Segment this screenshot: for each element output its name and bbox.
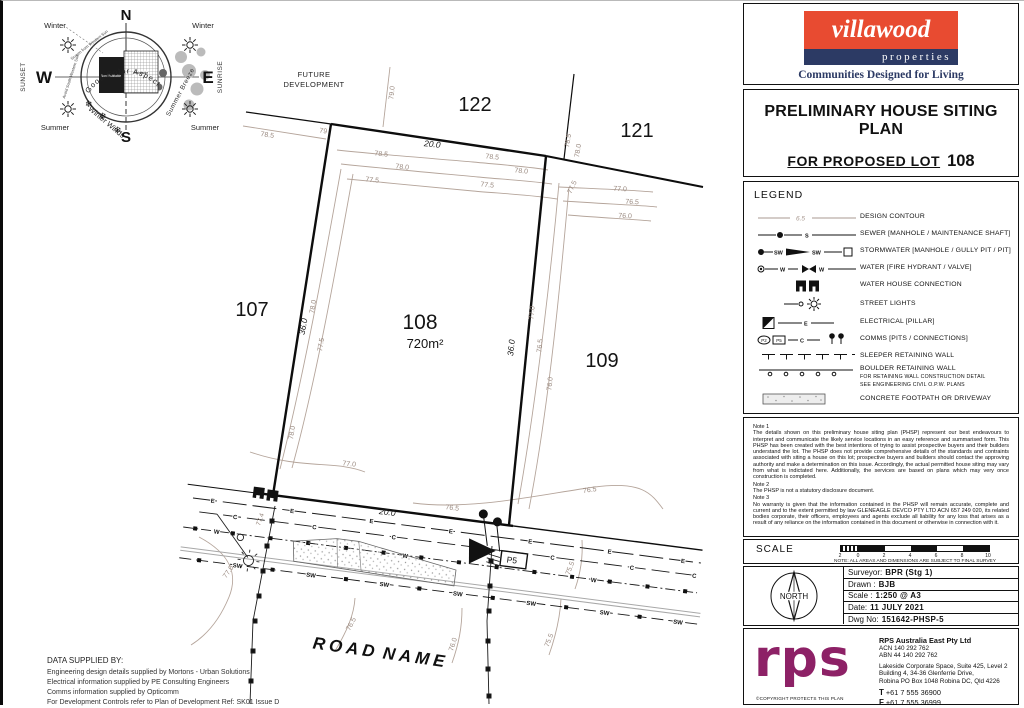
svg-text:DEVELOPMENT: DEVELOPMENT xyxy=(283,80,344,89)
svg-text:76.0: 76.0 xyxy=(618,213,632,221)
svg-text:E: E xyxy=(210,499,215,505)
svg-text:77.5: 77.5 xyxy=(567,180,579,195)
svg-text:77.0: 77.0 xyxy=(613,186,627,194)
compass-east: E xyxy=(202,68,213,87)
water-icon: W W xyxy=(756,261,860,277)
winter-sun-east-icon xyxy=(182,37,198,53)
svg-text:C: C xyxy=(692,574,698,581)
svg-text:Winter: Winter xyxy=(192,21,214,30)
data-supplied-heading: DATA SUPPLIED BY: xyxy=(47,656,407,665)
villawood-wordmark: villawood xyxy=(832,16,931,44)
svg-text:75.5: 75.5 xyxy=(565,561,577,576)
legend-row: W W WATER [FIRE HYDRANT / VALVE] xyxy=(756,260,1014,277)
firm-fax: F +61 7 555 36999 xyxy=(879,699,1007,707)
plan-sheet: E E E E E E E C C C C C C C xyxy=(0,0,1024,705)
legend-row: SLEEPER RETAINING WALL xyxy=(756,348,1014,365)
svg-text:77.5: 77.5 xyxy=(480,181,494,189)
north-arrow-icon: NORTH xyxy=(750,568,838,624)
svg-text:76.5: 76.5 xyxy=(583,486,598,495)
compass-west: W xyxy=(36,68,53,87)
design-contour-icon: 6.5 xyxy=(756,210,860,226)
svg-text:P5: P5 xyxy=(776,337,782,342)
svg-text:SW: SW xyxy=(812,250,822,256)
note-3-body: No warranty is given that the informatio… xyxy=(753,502,1009,527)
svg-text:SW: SW xyxy=(452,591,463,598)
svg-text:W: W xyxy=(780,267,786,273)
snowflake-icon: ❄ xyxy=(85,99,93,109)
copyright-note: ©COPYRIGHT PROTECTS THIS PLAN xyxy=(756,696,844,701)
svg-text:SW: SW xyxy=(379,582,390,589)
svg-text:P2: P2 xyxy=(761,337,767,342)
svg-text:78.0: 78.0 xyxy=(395,163,409,171)
legend-row: SW SW STORMWATER [MANHOLE / GULLY PIT / … xyxy=(756,243,1014,260)
svg-text:C: C xyxy=(550,555,556,562)
compass-north: N xyxy=(121,7,132,24)
svg-text:E: E xyxy=(528,539,533,545)
svg-text:79.0: 79.0 xyxy=(388,86,396,100)
svg-text:C: C xyxy=(800,338,804,344)
table-row: Surveyor:BPR (Stg 1) xyxy=(844,567,1018,579)
svg-text:C: C xyxy=(629,566,635,573)
lot-108-area: 720m² xyxy=(407,336,445,351)
legend-row: P2 P5 C COMMS [PITS / CONNECTIONS] xyxy=(756,331,1014,348)
table-row: Drawn :BJB xyxy=(844,579,1018,591)
lot-109-label: 109 xyxy=(585,350,618,372)
lot-107-label: 107 xyxy=(235,299,268,321)
svg-text:77.5: 77.5 xyxy=(365,176,379,184)
firm-box: rps RPS Australia East Pty Ltd ACN 140 2… xyxy=(743,628,1019,705)
svg-text:77.4: 77.4 xyxy=(255,512,266,527)
note-1-body: The details shown on this preliminary ho… xyxy=(753,430,1009,480)
svg-text:C: C xyxy=(232,515,238,522)
street-light-icon xyxy=(756,296,860,312)
svg-text:C: C xyxy=(391,535,397,542)
svg-text:SW: SW xyxy=(774,250,784,256)
brand-tagline: Communities Designed for Living xyxy=(744,69,1018,81)
svg-text:W: W xyxy=(819,267,825,273)
scale-note: NOTE: ALL AREAS AND DIMENSIONS ARE SUBJE… xyxy=(834,559,996,564)
firm-phone: T +61 7 555 36900 xyxy=(879,689,1007,697)
svg-text:76.0: 76.0 xyxy=(546,377,554,391)
svg-text:78.5: 78.5 xyxy=(260,131,275,140)
future-development-label: FUTURE xyxy=(298,70,331,79)
legend-row: WATER HOUSE CONNECTION xyxy=(756,277,1014,294)
svg-text:NORTH: NORTH xyxy=(779,592,808,601)
svg-text:SUNRISE: SUNRISE xyxy=(217,61,224,94)
table-row: Dwg No:151642-PHSP-5 xyxy=(844,614,1018,625)
svg-text:78.0: 78.0 xyxy=(309,299,318,314)
lot-121-label: 121 xyxy=(620,120,653,142)
svg-text:78.5: 78.5 xyxy=(564,133,573,148)
table-row: Scale :1:250 @ A3 xyxy=(844,591,1018,603)
stormwater-icon: SW SW xyxy=(756,244,860,260)
svg-text:77.0: 77.0 xyxy=(342,460,356,468)
legend-heading: LEGEND xyxy=(744,182,1018,201)
svg-text:Summer: Summer xyxy=(41,123,70,132)
svg-text:77.0: 77.0 xyxy=(528,306,536,320)
dim-left: 36.0 xyxy=(297,317,310,335)
notes-box: Note 1 The details shown on this prelimi… xyxy=(743,417,1019,537)
legend-row: S SEWER [MANHOLE / MAINTENANCE SHAFT] xyxy=(756,226,1014,243)
svg-text:78.5: 78.5 xyxy=(485,153,499,161)
svg-text:Winter: Winter xyxy=(44,21,66,30)
drawing-info-table: Surveyor:BPR (Stg 1) Drawn :BJB Scale :1… xyxy=(844,567,1018,625)
road-services: E E E E E E E C C C C C C C xyxy=(178,472,710,629)
legend-row: STREET LIGHTS xyxy=(756,294,1014,314)
legend-row: BOULDER RETAINING WALL FOR RETAINING WAL… xyxy=(756,365,1014,389)
snowflake-icon: ❄ xyxy=(114,125,122,135)
svg-text:W: W xyxy=(590,578,597,585)
scale-label: SCALE xyxy=(756,544,834,555)
svg-text:S: S xyxy=(805,233,809,239)
logo-box: villawood properties Communities Designe… xyxy=(743,3,1019,85)
svg-text:78.0: 78.0 xyxy=(574,143,583,158)
firm-details: RPS Australia East Pty Ltd ACN 140 292 7… xyxy=(879,635,1007,704)
svg-text:SW: SW xyxy=(526,601,537,608)
data-supplied-block: DATA SUPPLIED BY: Engineering design det… xyxy=(47,656,407,708)
svg-text:76.5: 76.5 xyxy=(625,199,639,207)
dim-top: 20.0 xyxy=(423,138,442,150)
electrical-pillar-icon: E xyxy=(756,315,860,331)
legend-row: CONCRETE FOOTPATH OR DRIVEWAY xyxy=(756,389,1014,409)
svg-text:SW: SW xyxy=(599,610,610,617)
svg-text:76.5: 76.5 xyxy=(536,339,544,353)
legend-row: 6.5 DESIGN CONTOUR xyxy=(756,209,1014,226)
scale-box: SCALE 2 0 2 4 6 8 10 NOTE: ALL AREAS AND… xyxy=(743,539,1019,564)
sheet-subtitle: FOR PROPOSED LOT108 xyxy=(744,152,1018,171)
table-row: Date:11 JULY 2021 xyxy=(844,602,1018,614)
sleeper-wall-icon xyxy=(756,349,860,365)
villawood-logo: villawood xyxy=(804,11,958,49)
lot-number: 108 xyxy=(947,152,975,170)
compass-diagram: Non Habitable Habitable Good Solar Aspec… xyxy=(11,5,236,143)
svg-text:E: E xyxy=(804,321,808,327)
snowflake-icon: ❄ xyxy=(99,111,107,121)
dim-right: 36.0 xyxy=(505,339,517,357)
svg-text:P5: P5 xyxy=(506,554,518,565)
svg-text:78.0: 78.0 xyxy=(514,167,528,175)
title-box: PRELIMINARY HOUSE SITING PLAN FOR PROPOS… xyxy=(743,89,1019,177)
svg-text:Avoid South Western Sun: Avoid South Western Sun xyxy=(61,54,80,99)
legend-box: LEGEND 6.5 DESIGN CONTOUR S SEWER [MANHO… xyxy=(743,181,1019,414)
legend-row: E ELECTRICAL [PILLAR] xyxy=(756,314,1014,331)
svg-text:E: E xyxy=(290,509,295,515)
svg-text:E: E xyxy=(607,549,612,555)
concrete-footpath-icon xyxy=(756,391,860,407)
sheet-title: PRELIMINARY HOUSE SITING PLAN xyxy=(744,103,1018,139)
svg-text:78.5: 78.5 xyxy=(374,150,388,158)
svg-text:SW: SW xyxy=(673,620,684,627)
titleblock-box: NORTH Surveyor:BPR (Stg 1) Drawn :BJB Sc… xyxy=(743,566,1019,626)
scale-bar: 2 0 2 4 6 8 10 NOTE: ALL AREAS AND DIMEN… xyxy=(834,545,994,565)
svg-text:76.5: 76.5 xyxy=(445,504,459,513)
summer-sun-west-icon xyxy=(60,101,76,117)
svg-text:Summer: Summer xyxy=(191,123,220,132)
svg-text:79: 79 xyxy=(319,128,328,136)
svg-text:E: E xyxy=(680,559,685,565)
svg-text:C: C xyxy=(312,525,318,532)
comms-pit-icon: P5 xyxy=(466,508,533,571)
comms-icon: P2 P5 C xyxy=(756,332,860,348)
rps-logo: rps xyxy=(754,635,879,704)
svg-text:E: E xyxy=(369,519,374,525)
svg-text:E: E xyxy=(448,529,453,535)
svg-text:6.5: 6.5 xyxy=(796,215,805,222)
svg-text:78.0: 78.0 xyxy=(288,425,297,440)
svg-text:SUNSET: SUNSET xyxy=(20,62,27,91)
dim-front: 20.0 xyxy=(378,506,397,518)
svg-text:77.5: 77.5 xyxy=(317,337,326,352)
sewer-icon: S xyxy=(756,227,860,243)
winter-sun-west-icon xyxy=(60,37,76,53)
lot-122-label: 122 xyxy=(458,94,491,116)
lot-108-label: 108 xyxy=(402,311,437,334)
svg-text:SW: SW xyxy=(306,573,317,580)
svg-text:76.5: 76.5 xyxy=(345,617,358,632)
svg-text:W: W xyxy=(213,529,220,536)
note-2-body: The PHSP is not a statutory disclosure d… xyxy=(753,488,1009,494)
water-house-connection-icon xyxy=(756,278,860,294)
boulder-wall-icon xyxy=(756,365,860,381)
